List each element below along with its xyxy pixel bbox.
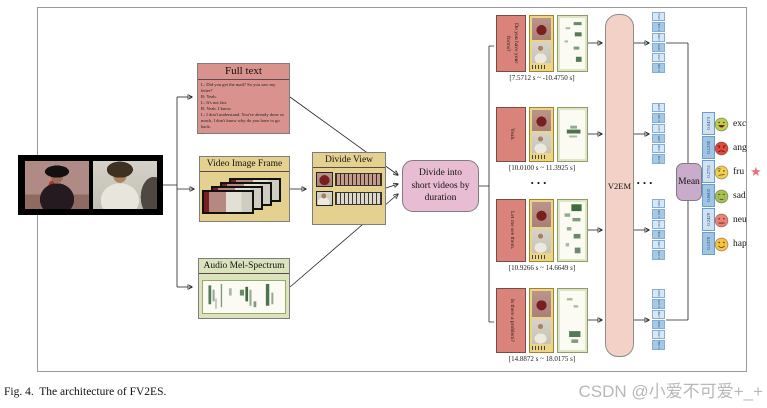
segment-output-vector: 0.0418 0.1196 0.2845 0.0587 0.2910 0.204…: [652, 289, 665, 350]
segment-timestamp: [7.5712 s ~ -10.4750 s]: [487, 74, 597, 82]
film-strip: [335, 173, 382, 186]
vector-cell: 0.2966: [652, 33, 665, 42]
left-speaker-thumb: [532, 202, 551, 227]
frame-ticks: [532, 155, 545, 159]
frame-stack: [200, 172, 289, 222]
vector-cell: 0.1946: [652, 63, 665, 72]
divide-view-title: Divide View: [313, 153, 385, 168]
fru-emoji-icon: [714, 165, 729, 180]
emotion-row-sad: sad: [714, 184, 747, 208]
video-thumbnail: [18, 155, 163, 215]
segment-output-vector: 0.0512 0.1342 0.2966 0.0703 0.2531 0.194…: [652, 12, 665, 73]
segment-utterance: Do you have your forms?: [503, 16, 519, 71]
right-speaker-thumb: [316, 191, 333, 206]
spectrogram-image: [202, 280, 286, 314]
transcript-line: ...: [201, 130, 286, 136]
right-speaker-thumb: [532, 42, 551, 64]
divide-node-label: Divide into short videos by duration: [409, 167, 472, 204]
right-speaker-thumb: [532, 133, 551, 154]
figure-caption: Fig. 4. The architecture of FV2ES.: [4, 386, 166, 398]
vector-cell: 0.2214: [652, 124, 665, 133]
hap-emoji-icon: [714, 237, 729, 252]
frame-ticks: [532, 255, 545, 259]
spectrogram-image: [560, 18, 585, 69]
vector-cell: 0.0418: [652, 289, 665, 298]
video-image-frame-box: Video Image Frame: [199, 156, 290, 222]
segment-timestamp: [10.9266 s ~ 14.6649 s]: [487, 264, 597, 272]
vector-cell: 0.2044: [652, 340, 665, 349]
vector-cell: 0.0624: [652, 199, 665, 208]
video-image-frame-title: Video Image Frame: [200, 157, 289, 172]
segment-spectrogram-box: [557, 288, 588, 353]
segment-2: Yeah.: [496, 107, 588, 162]
transcript-line: L: Did you get the mail? So you saw my l…: [201, 82, 286, 94]
segment-utterance: Let me see them.: [507, 211, 515, 249]
vector-cell: 0.0587: [652, 320, 665, 329]
right-speaker-photo: [93, 161, 157, 209]
vector-cell: 0.3102: [652, 220, 665, 229]
emotion-row-exc: exc: [714, 112, 747, 136]
segment-utterance: Is there a problem?: [507, 299, 515, 342]
vector-cell: 0.1283: [652, 209, 665, 218]
segments-ellipsis: ...: [520, 172, 560, 188]
divide-view-box: Divide View: [312, 152, 386, 225]
left-speaker-thumb: [316, 172, 333, 187]
segment-text-box: Do you have your forms?: [496, 15, 526, 72]
segment-text-box: Yeah.: [496, 107, 526, 162]
full-text-box: Full text L: Did you get the mail? So yo…: [197, 63, 290, 134]
vector-cell: 0.0703: [652, 43, 665, 52]
segment-output-vector: 0.0389 0.1057 0.2214 0.0651 0.3348 0.234…: [652, 103, 665, 164]
emotion-legend: exc ang fru sad: [714, 112, 747, 256]
segment-4: Is there a problem?: [496, 288, 588, 353]
segment-timestamp: [14.8872 s ~ 18.0175 s]: [487, 355, 597, 363]
segment-spectrogram-box: [557, 107, 588, 162]
segment-3: Let me see them.: [496, 199, 588, 262]
transcript-text: L: Did you get the mail? So you saw my l…: [198, 80, 289, 138]
left-speaker-thumb: [532, 18, 551, 40]
spectrogram-image: [560, 291, 585, 350]
segment-spectrogram-box: [557, 15, 588, 72]
segment-spectrogram-box: [557, 199, 588, 262]
emotion-label: ang: [733, 143, 747, 153]
segment-text-box: Let me see them.: [496, 199, 526, 262]
vector-cell: 0.0512: [652, 12, 665, 21]
vector-cell: 0.1196: [652, 299, 665, 308]
left-speaker-thumb: [532, 110, 551, 131]
spectrogram-image: [560, 202, 585, 259]
emotion-label: hap: [733, 239, 747, 249]
emotion-label: sad: [733, 191, 746, 201]
video-frame: [202, 190, 254, 214]
neu-emoji-icon: [714, 213, 729, 228]
divided-strip-row: [313, 187, 385, 206]
segment-timestamp: [10.0100 s ~ 11.3925 s]: [487, 164, 597, 172]
emotion-row-ang: ang: [714, 136, 747, 160]
star-icon: ★: [750, 165, 762, 178]
vector-cell: 0.3348: [652, 144, 665, 153]
vector-cell: 0.0651: [652, 134, 665, 143]
transcript-line: L: I don't understand. You've already do…: [201, 112, 286, 130]
ang-emoji-icon: [714, 141, 729, 156]
vector-cell: 0.0542: [652, 230, 665, 239]
audio-mel-spectrum-box: Audio Mel-Spectrum: [198, 258, 290, 319]
segment-1: Do you have your forms?: [496, 15, 588, 72]
vector-cell: 0.2910: [652, 330, 665, 339]
segment-output-vector: 0.0624 0.1283 0.3102 0.0542 0.2667 0.178…: [652, 199, 665, 260]
segment-frames-box: [529, 199, 554, 262]
exc-emoji-icon: [714, 117, 729, 132]
full-text-title: Full text: [198, 64, 289, 80]
vector-cell: 0.0389: [652, 103, 665, 112]
vectors-ellipsis: ...: [626, 172, 666, 188]
audio-mel-spectrum-title: Audio Mel-Spectrum: [199, 259, 289, 274]
vector-cell: 0.2341: [652, 154, 665, 163]
vector-cell: 0.2845: [652, 310, 665, 319]
film-strip: [335, 192, 382, 205]
vector-cell: 0.1342: [652, 22, 665, 31]
segment-frames-box: [529, 107, 554, 162]
emotion-row-hap: hap: [714, 232, 747, 256]
divided-strip-row: [313, 168, 385, 187]
segment-text-box: Is there a problem?: [496, 288, 526, 353]
divide-node: Divide into short videos by duration: [402, 160, 479, 212]
frame-ticks: [532, 65, 545, 69]
mean-node: Mean: [676, 163, 702, 201]
emotion-row-neu: neu: [714, 208, 747, 232]
emotion-label: fru: [733, 167, 744, 177]
left-speaker-thumb: [532, 291, 551, 317]
emotion-label: exc: [733, 119, 746, 129]
mean-label: Mean: [678, 177, 700, 187]
vector-cell: 0.2667: [652, 240, 665, 249]
segment-utterance: Yeah.: [507, 128, 515, 141]
emotion-label: neu: [733, 215, 747, 225]
right-speaker-thumb: [532, 319, 551, 345]
segment-frames-box: [529, 288, 554, 353]
right-speaker-thumb: [532, 229, 551, 254]
segment-frames-box: [529, 15, 554, 72]
sad-emoji-icon: [714, 189, 729, 204]
spectrogram-image: [560, 110, 585, 159]
vector-cell: 0.1057: [652, 113, 665, 122]
vector-cell: 0.1782: [652, 250, 665, 259]
frame-ticks: [532, 346, 545, 350]
watermark-text: CSDN @小爱不可爱+_+: [420, 377, 763, 402]
vector-cell: 0.2531: [652, 53, 665, 62]
left-speaker-photo: [25, 161, 89, 209]
emotion-row-fru: fru: [714, 160, 747, 184]
